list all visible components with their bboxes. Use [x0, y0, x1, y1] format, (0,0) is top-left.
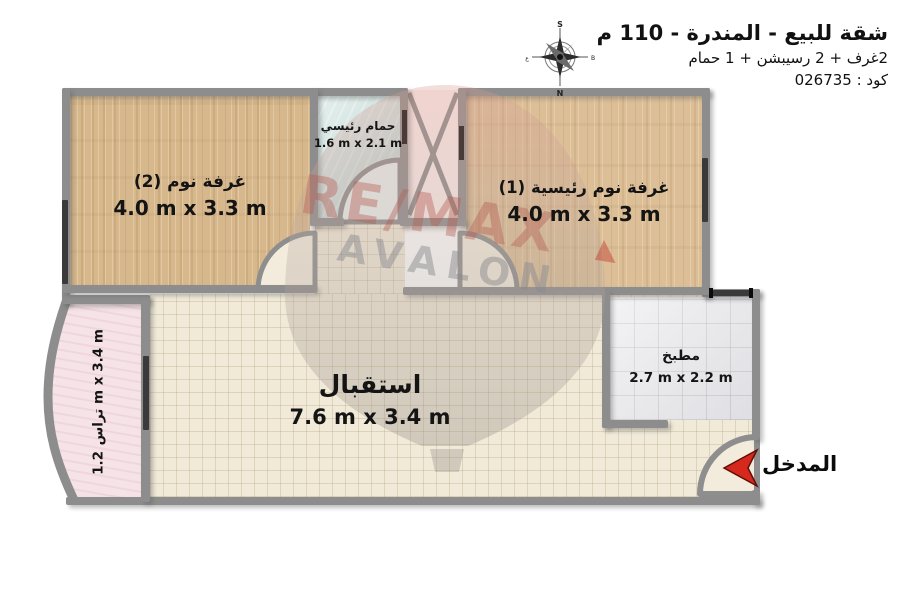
wall-bedroom2-bathroom [310, 88, 318, 226]
wall-bedroom2-bottom [62, 285, 317, 293]
wall-right-mid [752, 289, 760, 440]
kitchen-window [712, 290, 752, 296]
wall-bottom [66, 497, 760, 505]
terrace-label: تراس [91, 409, 107, 446]
kitchen-label: مطبخ [612, 348, 750, 364]
compass-left-label: ع [525, 55, 529, 62]
kitchen-window-tick [709, 288, 713, 298]
wall-master-bottom [403, 287, 710, 295]
bathroom-dims: 1.6 m x 2.1 m [308, 136, 408, 150]
wall-kitchen-bottom [602, 420, 668, 428]
bathroom-label: حمام رئيسي [314, 119, 402, 133]
kitchen-window-tick [749, 288, 753, 298]
master-bedroom-door-arc [460, 233, 517, 290]
wall-bathroom-shaft [400, 88, 408, 226]
entrance-door-arc [700, 437, 757, 494]
kitchen-dims: 2.7 m x 2.2 m [612, 370, 750, 386]
wall-top-left [62, 88, 408, 96]
terrace-label-group: تراس 1.2 m x 3.4 m [88, 320, 128, 485]
bedroom2-dims: 4.0 m x 3.3 m [70, 196, 310, 220]
wall-kitchen-left [602, 291, 610, 428]
master-bedroom-label: غرفة نوم رئيسية (1) [466, 178, 702, 197]
wall-terrace-top [62, 295, 150, 304]
terrace-window [143, 356, 149, 430]
reception-label: استقبال [270, 370, 470, 399]
bedroom2-door-arc [258, 233, 315, 290]
terrace-dims: 1.2 m x 3.4 m [91, 329, 107, 475]
compass-right-label: B [591, 55, 595, 62]
bedroom2-window [62, 200, 68, 284]
shaft-vent [459, 126, 464, 160]
bedroom2-label: غرفة نوم (2) [70, 172, 310, 192]
reception-dims: 7.6 m x 3.4 m [270, 405, 470, 429]
compass-rose-icon: S N ع B [522, 20, 598, 98]
wall-shaft-bottom [400, 218, 466, 226]
compass-bottom-label: N [557, 89, 564, 98]
entrance-label: المدخل [762, 452, 892, 476]
wall-bathroom-bottom [310, 218, 344, 226]
bathroom-door-arc [340, 160, 400, 222]
master-bedroom-window [702, 158, 708, 222]
floorplan-page: شقة للبيع - المندرة - 110 م 2غرف + 2 رسي… [0, 0, 900, 600]
compass-top-label: S [557, 20, 563, 29]
master-bedroom-dims: 4.0 m x 3.3 m [466, 202, 702, 226]
